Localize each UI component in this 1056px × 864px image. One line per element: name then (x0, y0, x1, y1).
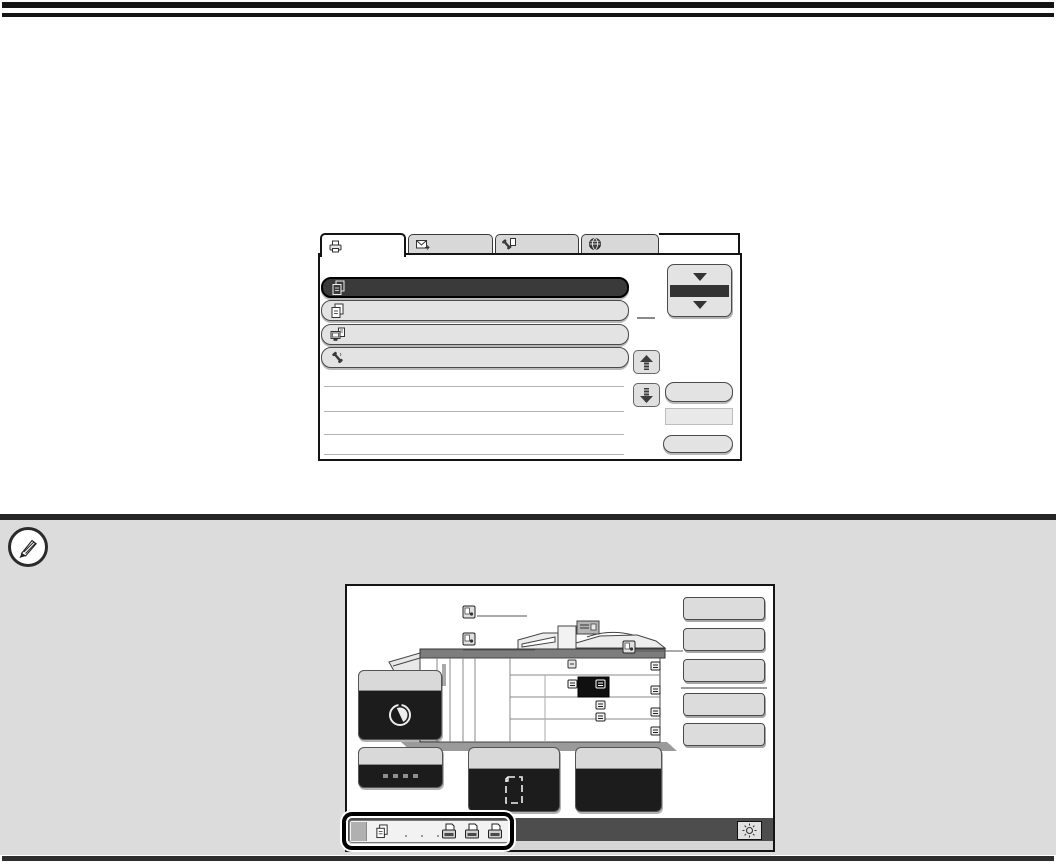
status-square-indicator (351, 822, 367, 841)
system-status-screen (345, 584, 775, 852)
job-mode-selector-button[interactable] (667, 264, 732, 317)
copy-pages-icon (331, 280, 346, 296)
page-outline-icon (502, 775, 526, 805)
job-row-copy-selected[interactable] (321, 277, 629, 298)
right-key-2[interactable] (683, 628, 765, 651)
tab-fax-jobs[interactable] (495, 234, 579, 253)
blank-key-3[interactable] (663, 435, 733, 453)
status-dots (405, 827, 439, 837)
key-label-band (359, 671, 441, 691)
right-key-divider (681, 687, 767, 689)
job-printer-icon (441, 823, 457, 840)
note-top-rule (0, 514, 1056, 520)
right-key-3[interactable] (683, 659, 765, 682)
tab-internet-fax-jobs[interactable] (581, 234, 659, 253)
page-indicator-dash (637, 317, 655, 319)
chevron-down-icon (693, 301, 707, 309)
right-key-4[interactable] (683, 693, 765, 716)
tab-strip-cap (659, 233, 740, 254)
job-status-mini-icons (441, 823, 503, 840)
original-size-key[interactable] (468, 747, 560, 812)
pencil-icon (15, 534, 41, 560)
toner-status-key[interactable] (358, 670, 442, 740)
right-key-1[interactable] (683, 597, 765, 620)
bottom-rule (2, 856, 1054, 861)
pencil-circle-icon (8, 527, 48, 567)
empty-job-line (324, 411, 624, 412)
top-rule-2 (2, 13, 1054, 17)
job-row-pc-print[interactable] (321, 324, 629, 345)
toner-cartridge-icon (386, 701, 414, 729)
copy-pages-icon (375, 823, 389, 840)
printer-icon (328, 239, 343, 253)
top-rule-1 (2, 2, 1054, 8)
job-row-fax[interactable] (321, 347, 629, 368)
pc-print-icon (330, 327, 346, 342)
key-label-band (576, 748, 661, 769)
empty-job-line (324, 434, 624, 435)
brightness-adjust-key[interactable] (737, 821, 762, 840)
envelope-send-icon (415, 237, 430, 251)
up-arrow-icon (640, 355, 653, 370)
phone-handset-icon (330, 350, 345, 365)
copy-pages-icon (330, 303, 345, 319)
job-printer-icon (464, 823, 480, 840)
job-row-copy[interactable] (321, 300, 629, 321)
key-label-band (359, 748, 442, 765)
down-arrow-icon (640, 388, 653, 403)
tab-print-jobs[interactable] (320, 233, 406, 257)
blank-image-key[interactable] (575, 747, 662, 812)
blank-key-2[interactable] (665, 408, 733, 425)
job-status-display[interactable] (349, 820, 510, 843)
chevron-down-icon (693, 273, 707, 281)
fax-handset-icon (502, 237, 517, 251)
job-printer-icon (487, 823, 503, 840)
manual-page (0, 0, 1056, 864)
job-status-screen (318, 233, 742, 461)
note-section (0, 514, 1056, 855)
callout-marker-1 (463, 606, 527, 618)
blank-key-1[interactable] (665, 382, 733, 402)
key-label-band (469, 748, 559, 769)
paper-size-key[interactable] (358, 747, 443, 788)
right-key-5[interactable] (683, 723, 765, 746)
globe-icon (588, 237, 602, 251)
operation-panel-marker (577, 621, 599, 634)
tab-scan-send-jobs[interactable] (408, 234, 493, 253)
empty-job-line (324, 386, 624, 387)
paper-size-marks (383, 774, 418, 778)
selector-band (670, 285, 729, 297)
sun-icon (742, 823, 757, 838)
scroll-up-button[interactable] (633, 350, 660, 374)
scroll-down-button[interactable] (633, 383, 660, 407)
empty-job-line (324, 454, 624, 455)
